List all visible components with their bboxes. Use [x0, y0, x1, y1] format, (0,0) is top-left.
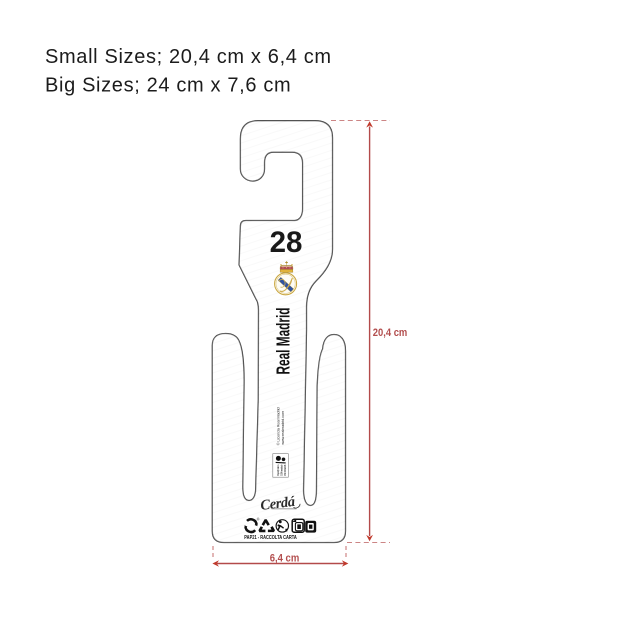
svg-text:®: ®: [257, 518, 260, 522]
svg-text:Real Madrid: Real Madrid: [273, 308, 293, 375]
svg-text:20,4 cm: 20,4 cm: [373, 327, 408, 339]
svg-text:Small Sizes; 20,4 cm x 6,4 cm: Small Sizes; 20,4 cm x 6,4 cm: [45, 46, 332, 68]
svg-text:6,4 cm: 6,4 cm: [270, 553, 300, 565]
svg-text:PAP21 - RACCOLTA CARTA: PAP21 - RACCOLTA CARTA: [244, 535, 296, 541]
svg-text:Big Sizes; 24 cm x 7,6 cm: Big Sizes; 24 cm x 7,6 cm: [45, 75, 291, 97]
svg-text:www.realmadrid.com: www.realmadrid.com: [280, 411, 285, 445]
svg-text:28: 28: [270, 226, 303, 259]
svg-text:FSC C012345: FSC C012345: [283, 464, 287, 476]
